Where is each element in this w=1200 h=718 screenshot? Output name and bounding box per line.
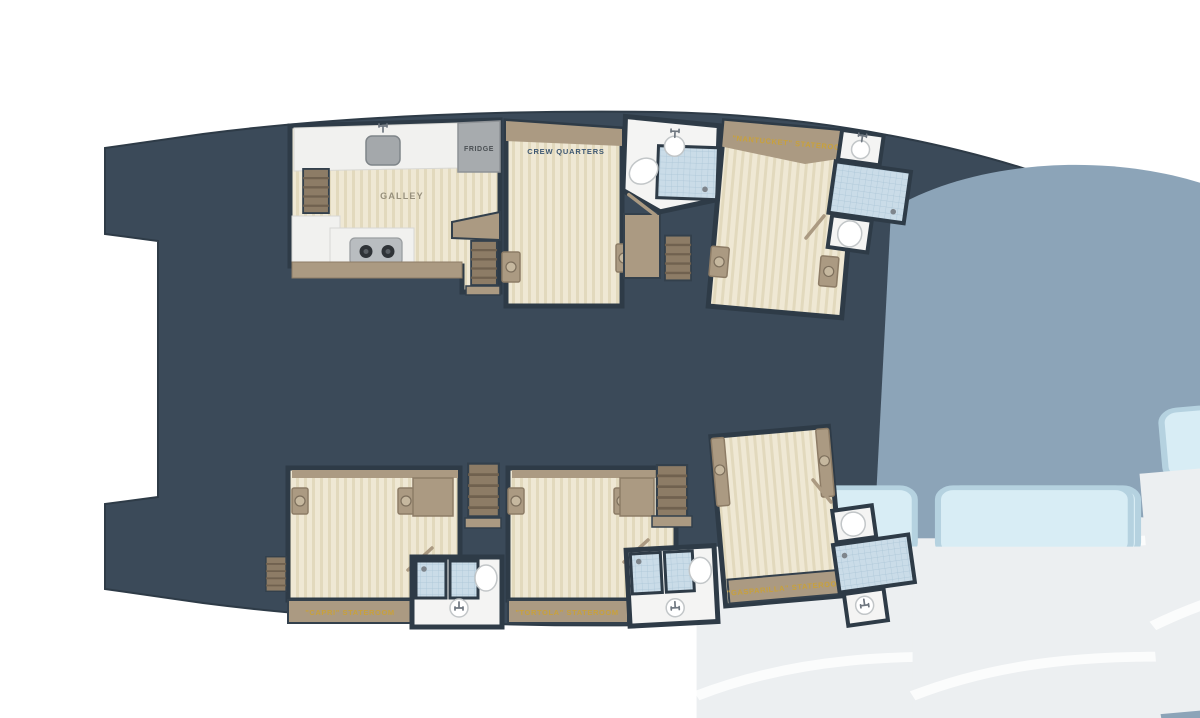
toilet-icon	[689, 557, 712, 584]
dresser	[620, 478, 654, 516]
companionway-steps	[471, 241, 497, 285]
floor-plan-canvas: FRIDGE GALLEY CREW QUARTERS	[0, 0, 1200, 718]
shower-tile	[828, 161, 910, 223]
nightstand-knob	[714, 465, 725, 476]
capri-label: "CAPRI" STATEROOM	[305, 608, 395, 617]
galley-sink-icon	[366, 136, 400, 165]
stair-landing	[624, 214, 660, 278]
nightstand-knob	[511, 496, 521, 506]
shower-tile	[833, 535, 915, 593]
tortola-label: "TORTOLA" STATEROOM	[515, 608, 618, 617]
sink-icon	[664, 136, 685, 157]
step-landing	[466, 286, 500, 295]
room-crew-bath	[622, 116, 719, 217]
shower-tile	[630, 552, 662, 594]
nightstand-knob	[819, 455, 830, 466]
crew-quarters-label: CREW QUARTERS	[527, 147, 604, 156]
capri-headboard-trim	[292, 470, 458, 478]
companionway-steps	[657, 465, 687, 517]
deck-plan: FRIDGE GALLEY CREW QUARTERS	[0, 0, 1200, 718]
galley-steps	[303, 169, 329, 213]
step-landing	[465, 518, 501, 528]
fridge-label: FRIDGE	[464, 146, 494, 153]
toilet-icon	[475, 565, 497, 591]
companionway-steps	[665, 236, 691, 281]
nightstand-knob	[295, 496, 305, 506]
galley-label: GALLEY	[380, 191, 424, 201]
companionway-steps	[468, 464, 499, 517]
tortola-headboard-trim	[512, 470, 672, 478]
room-tortola-bath	[626, 546, 718, 627]
nightstand-knob	[714, 256, 725, 267]
shower-tile	[657, 146, 719, 200]
aft-steps	[266, 557, 286, 592]
room-galley: FRIDGE GALLEY	[290, 120, 500, 295]
nightstand-knob	[506, 262, 516, 272]
shower-tile	[416, 561, 446, 598]
room-capri-bath	[412, 557, 502, 627]
tile-floor	[450, 561, 478, 598]
shower-head-icon	[421, 566, 427, 572]
galley-lower-trim	[292, 262, 462, 278]
nightstand-knob	[401, 496, 411, 506]
step-landing	[652, 516, 692, 527]
nightstand-knob	[823, 266, 834, 277]
dresser	[413, 478, 453, 516]
